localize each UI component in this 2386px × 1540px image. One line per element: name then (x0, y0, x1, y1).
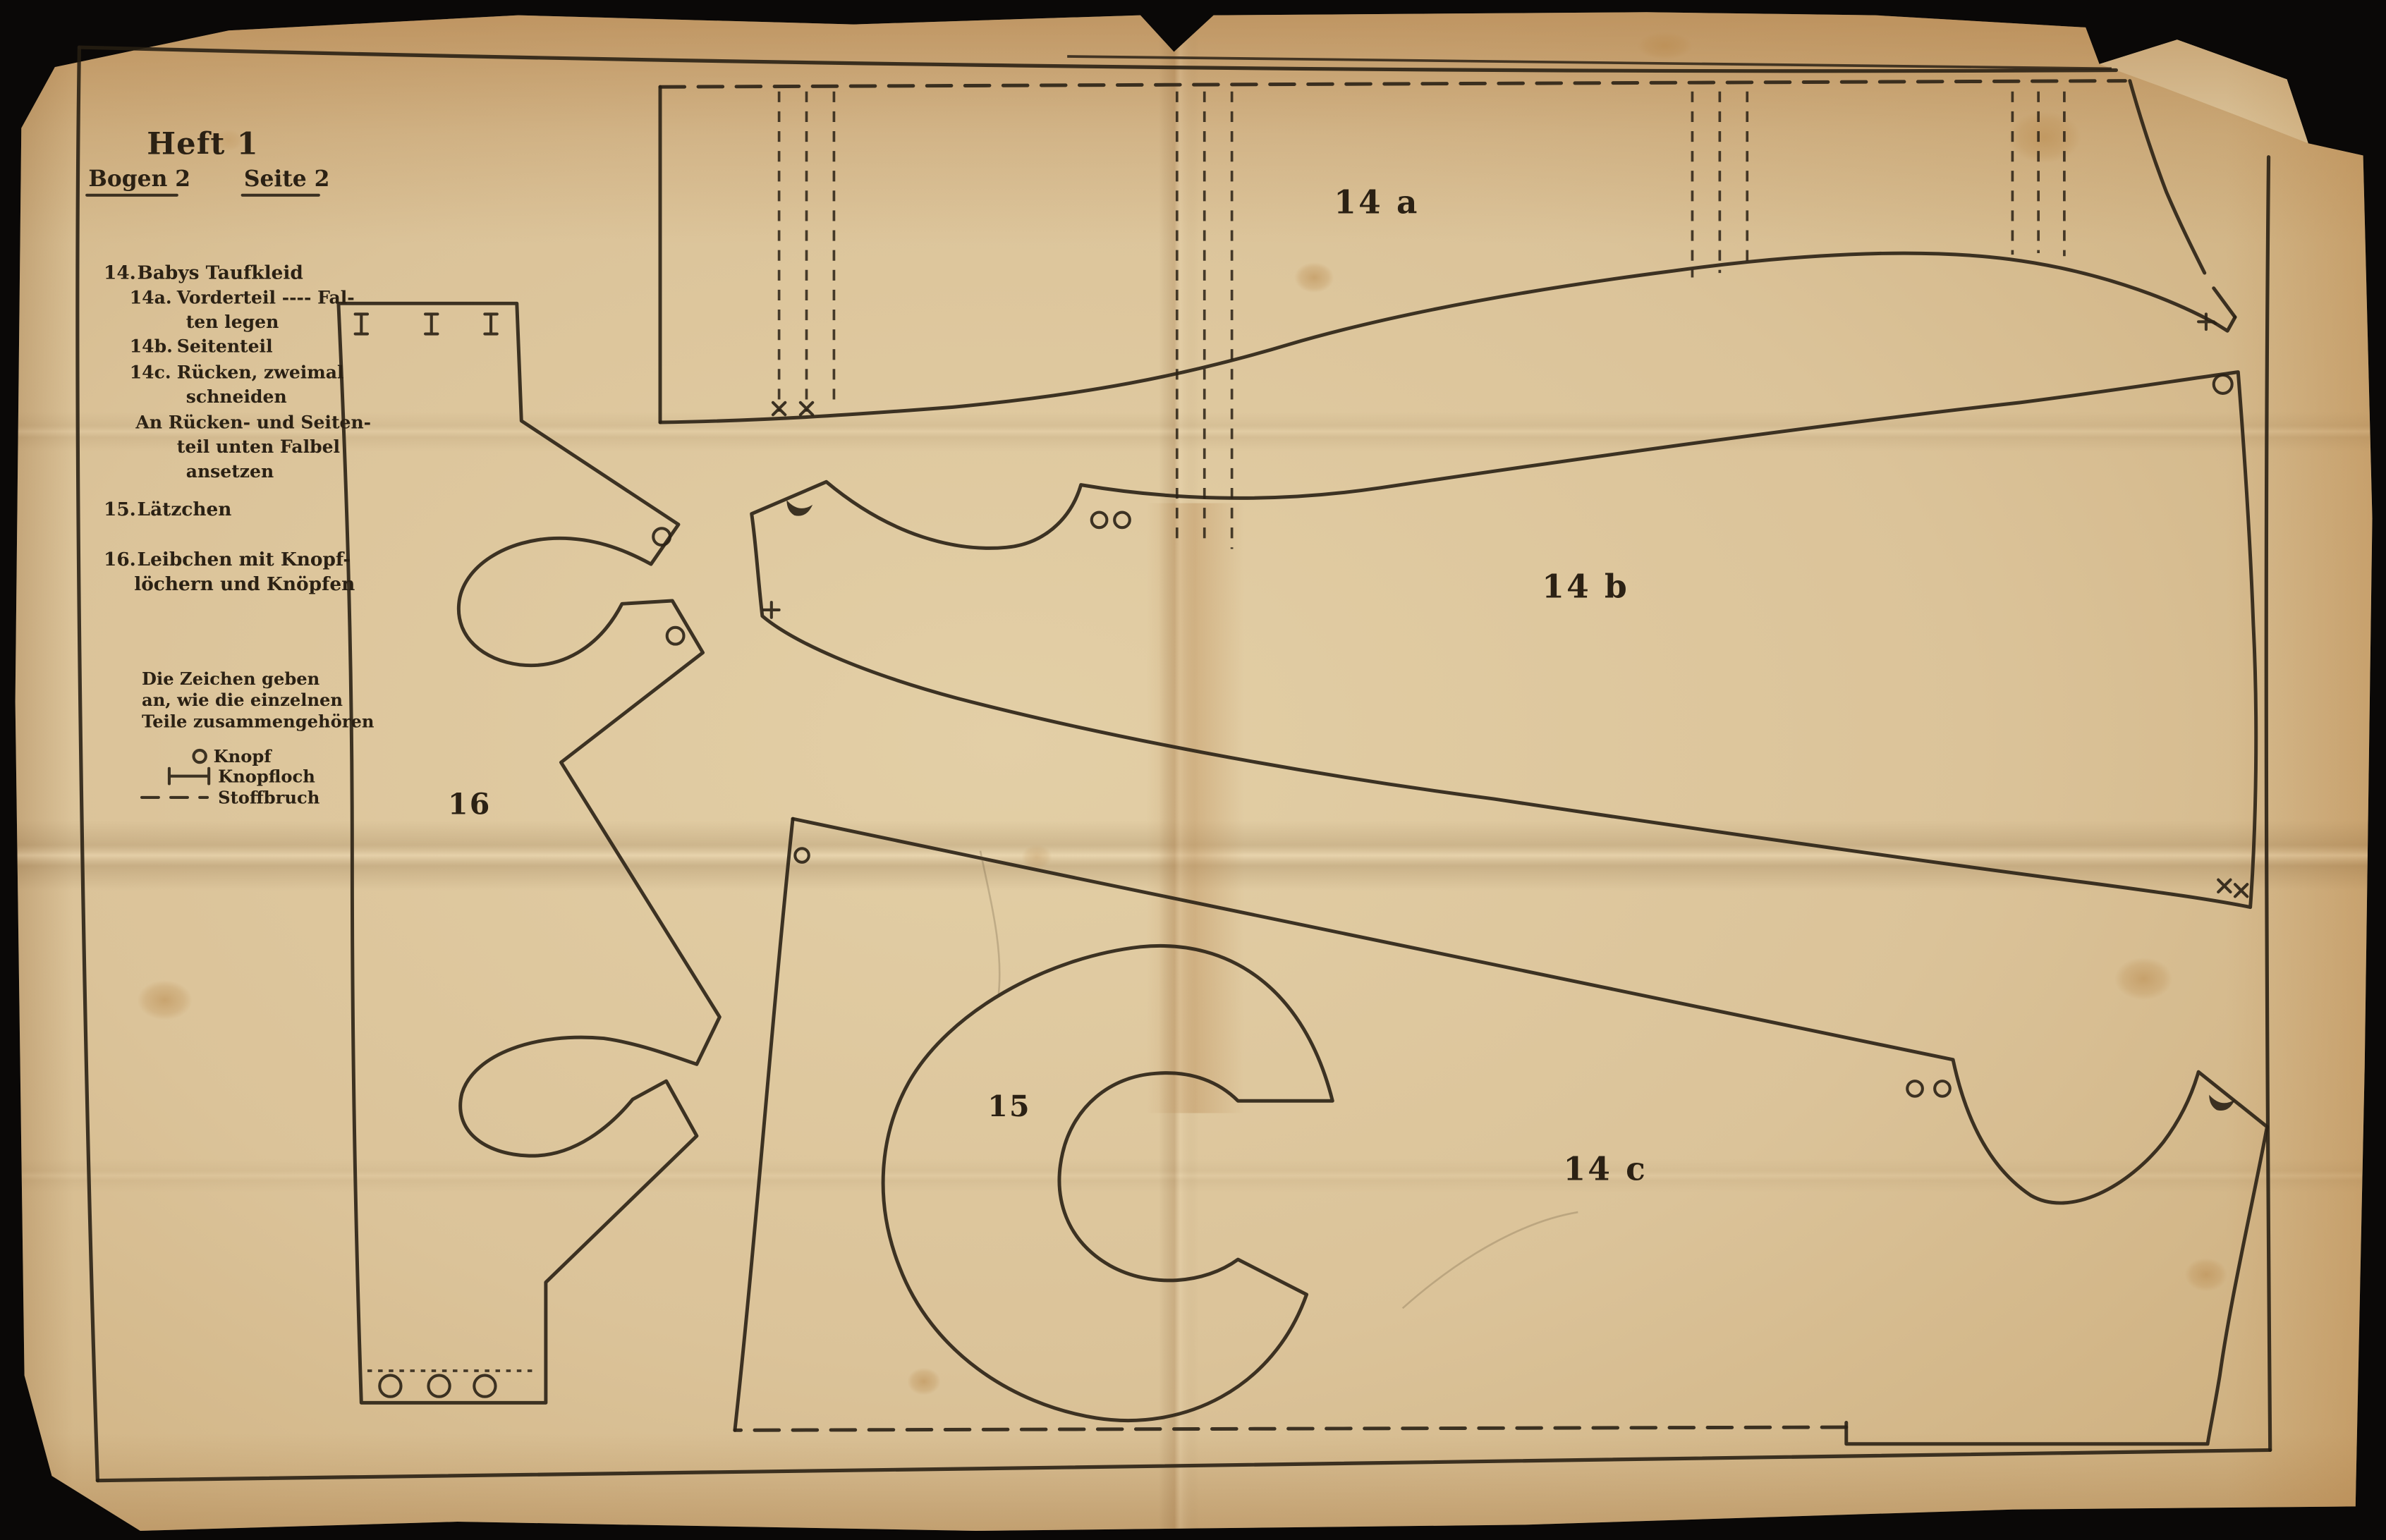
legend-intro-2: an, wie die einzelnen (142, 690, 343, 710)
legend-intro-3: Teile zusammengehören (142, 711, 375, 731)
index-no-14b: 14b. (130, 336, 173, 357)
index-note-3: ansetzen (186, 460, 274, 482)
index-no-14a: 14a. (130, 286, 172, 307)
legend-label-knopf: Knopf (214, 746, 273, 766)
legend-label-knopfloch: Knopfloch (218, 766, 315, 786)
piece-14a-label: 14 a (1334, 183, 1419, 221)
paper-stain (1294, 262, 1334, 293)
paper-stain (907, 1368, 941, 1395)
index-title-15: Lätzchen (138, 499, 232, 520)
paper-stain (2008, 111, 2081, 164)
index-line-16-2: löchern und Knöpfen (134, 573, 355, 595)
index-note-1: An Rücken- und Seiten- (135, 412, 371, 433)
legend-intro-1: Die Zeichen geben (142, 668, 320, 689)
fold-stain-band (1147, 503, 1244, 1113)
index-line-14c-1: Rücken, zweimal (177, 361, 344, 382)
paper-stain (1021, 845, 1052, 869)
index-no-14c: 14c. (130, 361, 171, 382)
page-number: Seite 2 (244, 166, 330, 192)
legend-label-stoffbruch: Stoffbruch (218, 788, 320, 808)
piece-15-label: 15 (987, 1089, 1030, 1123)
paper-stain (1638, 32, 1693, 59)
index-note-2: teil unten Falbel (177, 436, 340, 457)
paper-stain (2185, 1258, 2228, 1292)
index-line-14b-1: Seitenteil (177, 336, 273, 357)
index-line-14c-2: schneiden (186, 386, 287, 407)
photo-of-sewing-pattern-sheet: 14 a 14 b 14 c 15 (0, 0, 2386, 1540)
paper-stain (2114, 958, 2172, 1001)
index-no-15: 15. (104, 499, 136, 520)
paper-stain (138, 980, 193, 1020)
index-title-14: Babys Taufkleid (138, 262, 303, 284)
piece-14b-label: 14 b (1542, 568, 1629, 606)
piece-14c-label: 14 c (1563, 1150, 1648, 1188)
pattern-sheet-svg: 14 a 14 b 14 c 15 (0, 0, 2386, 1540)
index-line-14a-1: Vorderteil ---- Fal- (176, 286, 355, 307)
piece-16-label: 16 (448, 787, 491, 821)
index-no-16: 16. (104, 549, 136, 570)
index-line-14a-2: ten legen (186, 311, 279, 332)
index-line-16-1: Leibchen mit Knopf- (138, 549, 351, 570)
sheet-number: Bogen 2 (88, 166, 190, 192)
index-no-14: 14. (104, 262, 136, 284)
booklet-title: Heft 1 (147, 126, 259, 161)
